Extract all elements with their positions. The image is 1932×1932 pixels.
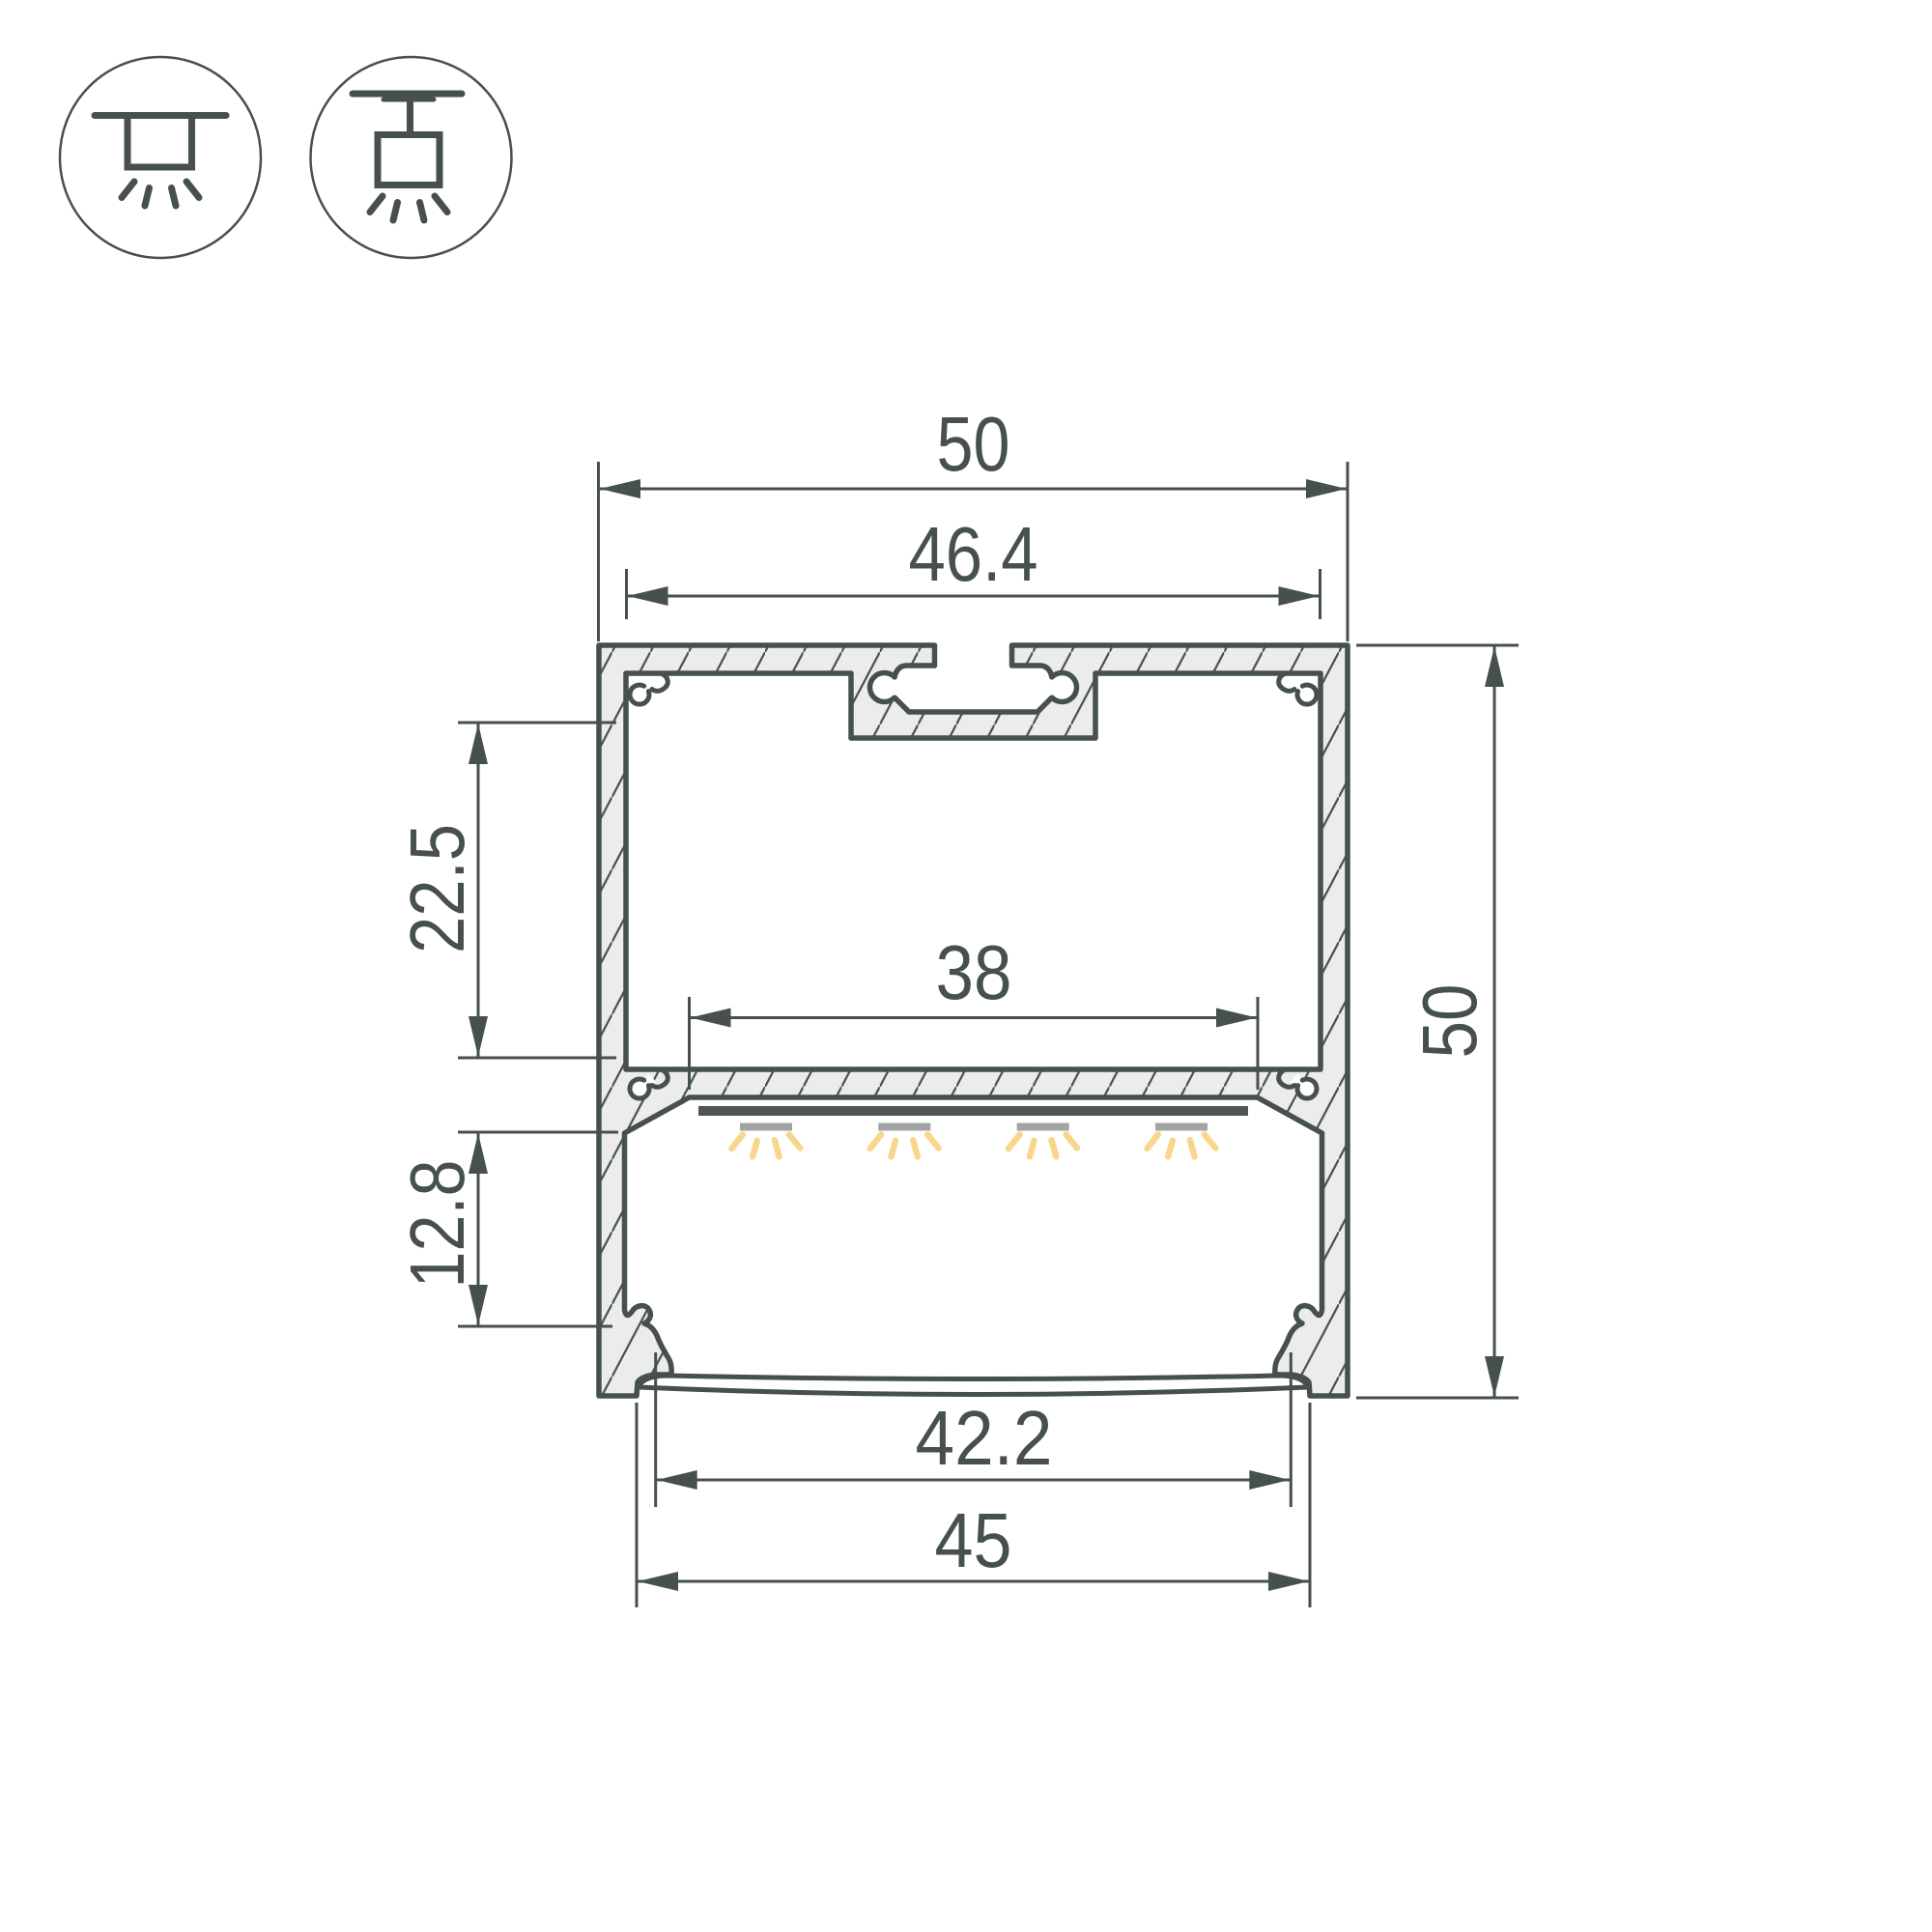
svg-text:42.2: 42.2 [916,1395,1053,1481]
svg-text:45: 45 [935,1497,1012,1583]
svg-text:38: 38 [936,929,1012,1015]
svg-text:50: 50 [1406,984,1492,1059]
svg-text:50: 50 [937,401,1010,487]
svg-text:22.5: 22.5 [394,824,480,953]
svg-text:46.4: 46.4 [909,511,1038,597]
svg-text:12.8: 12.8 [394,1160,480,1289]
